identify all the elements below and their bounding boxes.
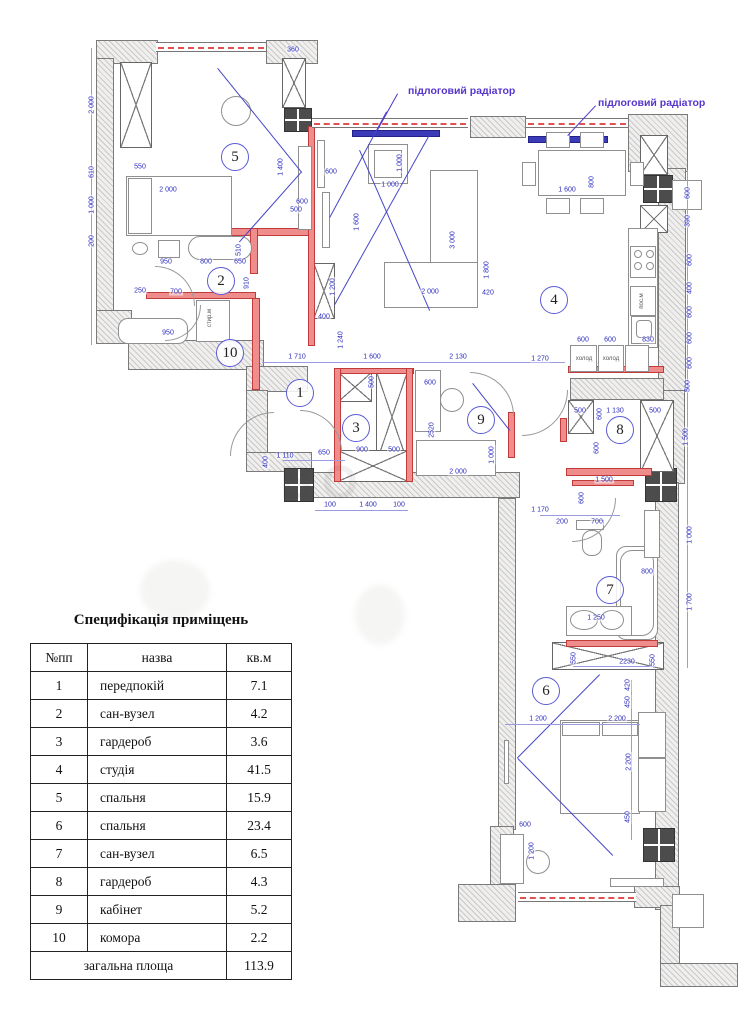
appliance-label: холод xyxy=(576,356,592,362)
room-number: 4 xyxy=(540,286,568,314)
dimension-label: 950 xyxy=(159,259,173,266)
dimension-label: 2 000 xyxy=(420,289,440,296)
partition-wall xyxy=(252,298,260,390)
dimension-label: 910 xyxy=(244,276,251,290)
spec-name: спальня xyxy=(88,812,227,840)
dimension-label: 1 170 xyxy=(530,507,550,514)
spec-name: сан-вузел xyxy=(88,840,227,868)
dimension-label: 2230 xyxy=(618,659,636,666)
dimension-label: 100 xyxy=(392,502,406,509)
radiator-label: підлоговий радіатор xyxy=(408,85,515,97)
dimension-label: 500 xyxy=(369,375,376,389)
dimension-label: 600 xyxy=(594,441,601,455)
spec-num: 4 xyxy=(31,756,88,784)
spec-num: 10 xyxy=(31,924,88,952)
spec-name: гардероб xyxy=(88,728,227,756)
dimension-label: 360 xyxy=(286,47,300,54)
spec-area: 23.4 xyxy=(227,812,292,840)
spec-name: сан-вузел xyxy=(88,700,227,728)
dimension-label: 600 xyxy=(423,380,437,387)
dimension-label: 1 600 xyxy=(354,212,361,232)
dimension-label: 600 xyxy=(687,331,694,345)
furniture xyxy=(546,198,570,214)
dimension-label: 420 xyxy=(481,290,495,297)
furniture xyxy=(522,162,536,186)
spec-num: 8 xyxy=(31,868,88,896)
window xyxy=(156,42,266,52)
dimension-label: 1 710 xyxy=(287,354,307,361)
vent-shaft xyxy=(643,828,675,862)
dimension-label: 600 xyxy=(518,822,532,829)
dimension-label: 600 xyxy=(295,199,309,206)
spec-name: спальня xyxy=(88,784,227,812)
partition-wall xyxy=(566,640,658,647)
dimension-label: 1 000 xyxy=(89,195,96,215)
dimension-label: 200 xyxy=(555,519,569,526)
furniture xyxy=(298,146,312,230)
spec-num: 2 xyxy=(31,700,88,728)
spec-row: 9кабінет5.2 xyxy=(31,896,292,924)
room-number: 10 xyxy=(216,339,244,367)
spec-num: 9 xyxy=(31,896,88,924)
furniture xyxy=(196,300,230,342)
dimension-label: 1 130 xyxy=(605,408,625,415)
spec-area: 6.5 xyxy=(227,840,292,868)
spec-num: 5 xyxy=(31,784,88,812)
shaft-or-wardrobe xyxy=(640,135,668,175)
dimension-label: 800 xyxy=(589,175,596,189)
specification-block: Специфікація приміщень №ппназвакв.м 1пер… xyxy=(30,612,292,980)
furniture xyxy=(128,178,152,234)
dimension-label: 1 000 xyxy=(380,182,400,189)
dimension-label: 600 xyxy=(685,186,692,200)
dimension-label: 1 200 xyxy=(330,277,337,297)
dimension-label: 600 xyxy=(687,356,694,370)
dimension-label: 600 xyxy=(687,305,694,319)
dimension-label: 1 500 xyxy=(683,427,690,447)
appliance-label: холод xyxy=(603,356,619,362)
spec-title: Специфікація приміщень xyxy=(30,612,292,629)
spec-row: 3гардероб3.6 xyxy=(31,728,292,756)
appliance-label: пос.м xyxy=(639,293,645,308)
furniture xyxy=(625,345,649,372)
dimension-label: 450 xyxy=(625,695,632,709)
dimension-label: 500 xyxy=(648,408,662,415)
watermark-smudge xyxy=(140,560,210,620)
dimension-label: 2 200 xyxy=(626,752,633,772)
appliance-label: стир.м xyxy=(207,309,213,327)
furniture xyxy=(646,262,654,270)
furniture xyxy=(610,878,664,887)
spec-name: гардероб xyxy=(88,868,227,896)
shaft-or-wardrobe xyxy=(568,400,594,434)
dimension-label: 3 000 xyxy=(450,230,457,250)
dimension-label: 500 xyxy=(387,447,401,454)
spec-area: 7.1 xyxy=(227,672,292,700)
floorplan-page: 2 0006101 0002005502 0003601 40060060050… xyxy=(0,0,753,1024)
dimension-label: 200 xyxy=(89,234,96,248)
furniture xyxy=(672,894,704,928)
furniture xyxy=(644,510,660,558)
spec-name: студія xyxy=(88,756,227,784)
room-number: 8 xyxy=(606,416,634,444)
dimension-label: 600 xyxy=(579,491,586,505)
dimension-label: 650 xyxy=(233,259,247,266)
wall xyxy=(458,884,516,922)
dimension-label: 1 400 xyxy=(278,157,285,177)
partition-wall xyxy=(338,368,414,374)
spec-area: 4.3 xyxy=(227,868,292,896)
wall xyxy=(470,116,526,138)
spec-table: №ппназвакв.м 1передпокій7.12сан-вузел4.2… xyxy=(30,643,292,980)
room-number: 5 xyxy=(221,143,249,171)
furniture xyxy=(317,140,325,188)
furniture xyxy=(636,320,652,338)
dimension-label: 1 500 xyxy=(594,477,614,484)
dimension-label: 2 000 xyxy=(158,187,178,194)
dimension-label: 1 240 xyxy=(338,330,345,350)
watermark: ВО xyxy=(280,455,368,509)
furniture xyxy=(634,262,642,270)
spec-name: передпокій xyxy=(88,672,227,700)
dimension-label: 550 xyxy=(650,653,657,667)
dimension-label: 1 700 xyxy=(687,592,694,612)
dimension-label: 1 000 xyxy=(489,445,496,465)
dimension-label: 1 000 xyxy=(687,525,694,545)
dimension-label: 550 xyxy=(571,651,578,665)
spec-total-value: 113.9 xyxy=(227,952,292,980)
dimension-label: 2 000 xyxy=(89,95,96,115)
spec-area: 5.2 xyxy=(227,896,292,924)
dimension-label: 2520 xyxy=(429,421,436,439)
dimension-label: 400 xyxy=(263,455,270,469)
room-number: 3 xyxy=(342,414,370,442)
shaft-or-wardrobe xyxy=(282,58,306,108)
dimension-label: 2 000 xyxy=(448,469,468,476)
dimension-label: 420 xyxy=(625,678,632,692)
wall xyxy=(96,58,114,342)
dimension-label: 510 xyxy=(236,243,243,257)
dimension-label: 400 xyxy=(317,314,331,321)
dimension-label: 1 200 xyxy=(528,716,548,723)
room-number: 7 xyxy=(596,576,624,604)
dimension-label: 700 xyxy=(169,289,183,296)
furniture xyxy=(638,758,666,812)
dimension-label: 450 xyxy=(625,810,632,824)
furniture xyxy=(638,712,666,758)
room-number: 1 xyxy=(286,379,314,407)
dimension-label: 800 xyxy=(199,259,213,266)
spec-area: 15.9 xyxy=(227,784,292,812)
spec-area: 41.5 xyxy=(227,756,292,784)
spec-col-header: №пп xyxy=(31,644,88,672)
spec-row: 10комора2.2 xyxy=(31,924,292,952)
dimension-label: 390 xyxy=(685,214,692,228)
spec-row: 7сан-вузел6.5 xyxy=(31,840,292,868)
partition-wall xyxy=(406,368,413,482)
spec-row: 4студія41.5 xyxy=(31,756,292,784)
furniture xyxy=(504,740,509,784)
furniture xyxy=(580,132,604,148)
window xyxy=(312,118,468,128)
dimension-label: 830 xyxy=(641,337,655,344)
spec-col-header: кв.м xyxy=(227,644,292,672)
spec-row: 8гардероб4.3 xyxy=(31,868,292,896)
spec-name: комора xyxy=(88,924,227,952)
dimension-label: 500 xyxy=(685,379,692,393)
shaft-or-wardrobe xyxy=(120,62,152,148)
dimension-label: 1 270 xyxy=(530,356,550,363)
dimension-line xyxy=(315,510,408,511)
dimension-label: 1 250 xyxy=(586,615,606,622)
door-arc xyxy=(230,412,274,456)
spec-row: 6спальня23.4 xyxy=(31,812,292,840)
watermark-smudge xyxy=(355,585,405,645)
spec-num: 6 xyxy=(31,812,88,840)
furniture xyxy=(646,250,654,258)
dimension-label: 1 600 xyxy=(557,187,577,194)
room-number: 9 xyxy=(467,406,495,434)
spec-area: 3.6 xyxy=(227,728,292,756)
room-number: 6 xyxy=(532,677,560,705)
vent-shaft xyxy=(643,175,673,203)
radiator-label: підлоговий радіатор xyxy=(598,97,705,109)
dimension-label: 600 xyxy=(687,253,694,267)
dimension-label: 500 xyxy=(573,408,587,415)
spec-name: кабінет xyxy=(88,896,227,924)
room-number: 2 xyxy=(207,267,235,295)
dimension-label: 600 xyxy=(324,169,338,176)
furniture xyxy=(384,262,478,308)
spec-header-row: №ппназвакв.м xyxy=(31,644,292,672)
dimension-label: 600 xyxy=(597,407,604,421)
dimension-label: 2 130 xyxy=(448,354,468,361)
shaft-or-wardrobe xyxy=(338,372,372,402)
furniture xyxy=(158,240,180,258)
wall xyxy=(570,378,664,400)
spec-area: 2.2 xyxy=(227,924,292,952)
spec-area: 4.2 xyxy=(227,700,292,728)
spec-row: 1передпокій7.1 xyxy=(31,672,292,700)
dimension-line xyxy=(540,515,620,516)
dimension-label: 500 xyxy=(289,207,303,214)
dimension-label: 600 xyxy=(603,337,617,344)
dimension-label: 950 xyxy=(161,330,175,337)
partition-wall xyxy=(560,418,567,442)
dimension-label: 250 xyxy=(133,288,147,295)
furniture xyxy=(630,162,644,186)
spec-total-row: загальна площа113.9 xyxy=(31,952,292,980)
spec-total-label: загальна площа xyxy=(31,952,227,980)
dimension-label: 1 200 xyxy=(529,841,536,861)
furniture xyxy=(580,198,604,214)
furniture xyxy=(221,96,251,126)
dimension-label: 550 xyxy=(133,164,147,171)
dimension-label: 900 xyxy=(355,447,369,454)
furniture xyxy=(634,250,642,258)
spec-col-header: назва xyxy=(88,644,227,672)
spec-row: 5спальня15.9 xyxy=(31,784,292,812)
dimension-label: 1 000 xyxy=(397,153,404,173)
dimension-label: 2 200 xyxy=(607,716,627,723)
spec-num: 3 xyxy=(31,728,88,756)
furniture xyxy=(440,388,464,412)
dimension-label: 700 xyxy=(590,519,604,526)
furniture xyxy=(132,242,148,255)
window xyxy=(518,892,636,902)
furniture xyxy=(500,834,524,884)
partition-wall xyxy=(566,468,652,476)
dimension-line xyxy=(573,666,655,667)
dimension-label: 1 800 xyxy=(484,260,491,280)
wall xyxy=(660,963,738,987)
dimension-label: 800 xyxy=(640,569,654,576)
spec-num: 7 xyxy=(31,840,88,868)
partition-wall xyxy=(508,412,515,458)
dimension-label: 1 600 xyxy=(362,354,382,361)
dimension-line xyxy=(505,724,640,725)
furniture xyxy=(538,150,626,196)
spec-num: 1 xyxy=(31,672,88,700)
spec-row: 2сан-вузел4.2 xyxy=(31,700,292,728)
furniture xyxy=(430,170,478,266)
dimension-label: 610 xyxy=(89,165,96,179)
dimension-label: 600 xyxy=(576,337,590,344)
door-arc xyxy=(155,266,195,306)
furniture xyxy=(322,192,330,248)
dimension-line xyxy=(262,362,565,363)
dimension-label: 400 xyxy=(687,281,694,295)
